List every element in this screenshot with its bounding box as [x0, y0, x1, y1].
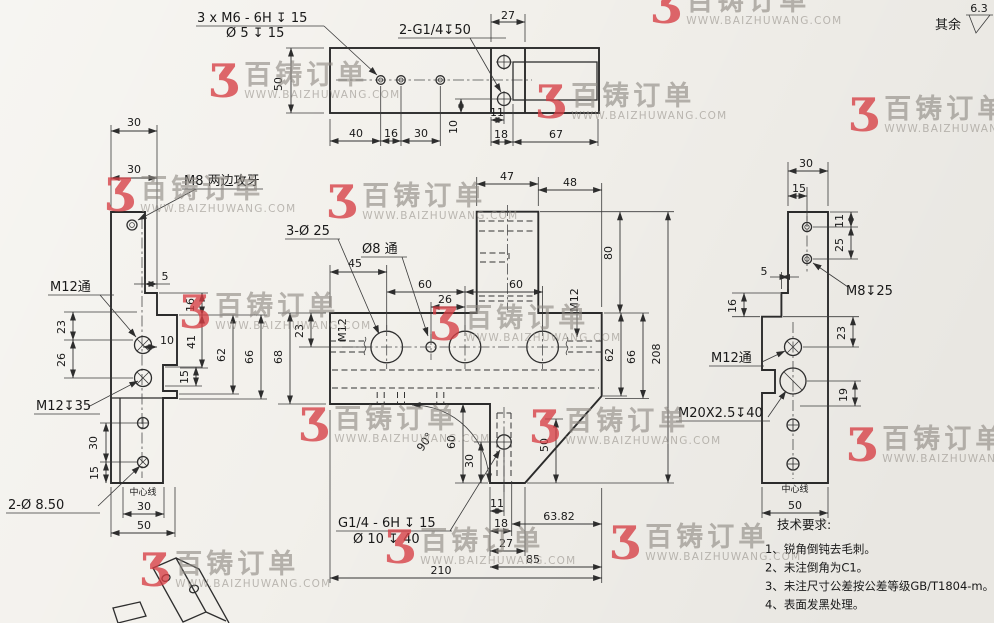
drawing-label: 62 — [215, 348, 228, 362]
drawing-label: 3 x M6 - 6H ↧ 15 — [197, 11, 307, 26]
drawing-label: 67 — [549, 128, 563, 141]
tech-requirement-item: 3、未注尺寸公差按公差等级GB/T1804-m。 — [765, 579, 994, 593]
tech-requirement-item: 4、表面发黑处理。 — [765, 598, 864, 612]
drawing-label: 50 — [788, 499, 802, 512]
drawing-label: 85 — [526, 553, 540, 566]
drawing-label: 50 — [137, 519, 151, 532]
drawing-label: 23 — [55, 320, 68, 334]
drawing-label: 208 — [650, 344, 663, 365]
drawing-label: M12 — [336, 318, 349, 342]
drawing-label: 60 — [509, 278, 523, 291]
drawing-label: 6.3 — [970, 2, 988, 15]
engineering-drawing: 3 x M6 - 6H ↧ 15Ø 5 ↧ 152-G1/4↧505040163… — [0, 0, 994, 623]
drawing-label: G1/4 - 6H ↧ 15 — [338, 516, 436, 531]
drawing-label: 66 — [243, 350, 256, 364]
drawing-label: 26 — [55, 353, 68, 367]
iso-sketch-view — [113, 558, 229, 623]
drawing-sheet: 3 x M6 - 6H ↧ 15Ø 5 ↧ 152-G1/4↧505040163… — [0, 0, 994, 623]
drawing-label: 19 — [837, 388, 850, 402]
drawing-label: 18 — [494, 128, 508, 141]
drawing-label: 11 — [833, 214, 846, 228]
drawing-label: 2-Ø 8.50 — [8, 498, 64, 513]
drawing-label: 16 — [184, 298, 197, 312]
drawing-label: 23 — [293, 324, 306, 338]
drawing-label: 41 — [185, 335, 198, 349]
drawing-label: 2-G1/4↧50 — [399, 23, 471, 38]
drawing-label: 30 — [137, 500, 151, 513]
drawing-label: 27 — [501, 9, 515, 22]
drawing-label: 3-Ø 25 — [286, 224, 330, 239]
tech-requirement-item: 2、未注倒角为C1。 — [765, 561, 868, 575]
drawing-label: 50 — [538, 438, 551, 452]
drawing-label: 10 — [447, 120, 460, 134]
tech-requirement-item: 1、锐角倒钝去毛刺。 — [765, 542, 876, 556]
drawing-label: 26 — [438, 293, 452, 306]
m6-hidden-holes — [377, 392, 444, 404]
drawing-label: 5 — [162, 270, 169, 283]
drawing-label: 60 — [445, 435, 458, 449]
drawing-label: M12通 — [711, 351, 752, 366]
drawing-label: 62 — [603, 348, 616, 362]
drawing-label: 11 — [490, 497, 504, 510]
drawing-label: 63.82 — [543, 510, 575, 523]
surface-roughness-icon — [966, 15, 993, 33]
drawing-label: 中心线 — [781, 483, 808, 495]
drawing-label: 11 — [490, 106, 504, 119]
drawing-label: 5 — [761, 265, 768, 278]
drawing-label: 48 — [563, 176, 577, 189]
drawing-label: 30 — [799, 157, 813, 170]
drawing-label: Ø 5 ↧ 15 — [226, 26, 284, 41]
drawing-label: M8↧25 — [846, 284, 893, 299]
drawing-label: 47 — [500, 170, 514, 183]
drawing-label: 中心线 — [129, 486, 156, 498]
dimension-labels: 3 x M6 - 6H ↧ 15Ø 5 ↧ 152-G1/4↧505040163… — [8, 2, 988, 577]
drawing-label: M12 — [568, 288, 581, 312]
drawing-label: 10 — [160, 334, 174, 347]
drawing-label: 15 — [792, 182, 806, 195]
drawing-label: 其余 — [935, 17, 961, 33]
drawing-label: 68 — [272, 350, 285, 364]
tech-requirements-title: 技术要求: — [777, 517, 831, 532]
drawing-label: 30 — [127, 116, 141, 129]
drawing-label: 18 — [494, 517, 508, 530]
drawing-label: 210 — [431, 564, 452, 577]
drawing-label: 40 — [349, 127, 363, 140]
drawing-label: 15 — [88, 466, 101, 480]
drawing-label: 16 — [726, 299, 739, 313]
drawing-label: 23 — [835, 326, 848, 340]
drawing-label: 30 — [414, 127, 428, 140]
drawing-label: 60 — [418, 278, 432, 291]
drawing-label: 30 — [127, 163, 141, 176]
drawing-label: M8 两边攻牙 — [184, 174, 260, 189]
drawing-label: 27 — [499, 537, 513, 550]
drawing-label: Ø 10 ↧ 40 — [353, 532, 420, 547]
drawing-label: 80 — [602, 246, 615, 260]
drawing-label: 25 — [833, 238, 846, 252]
drawing-label: 30 — [463, 454, 476, 468]
drawing-label: 16 — [384, 127, 398, 140]
drawing-label: 15 — [178, 370, 191, 384]
technical-requirements: 技术要求:1、锐角倒钝去毛刺。2、未注倒角为C1。3、未注尺寸公差按公差等级GB… — [765, 517, 994, 612]
drawing-label: M12通 — [50, 280, 91, 295]
drawing-label: 30 — [87, 436, 100, 450]
drawing-label: 45 — [348, 257, 362, 270]
drawing-label: 50 — [272, 77, 285, 91]
drawing-label: M12↧35 — [36, 399, 91, 414]
drawing-label: Ø8 通 — [362, 242, 398, 257]
drawing-label: 66 — [625, 350, 638, 364]
drawing-label: 90° — [414, 430, 436, 453]
drawing-label: M20X2.5↧40 — [678, 406, 763, 421]
g14-holes — [496, 54, 512, 107]
